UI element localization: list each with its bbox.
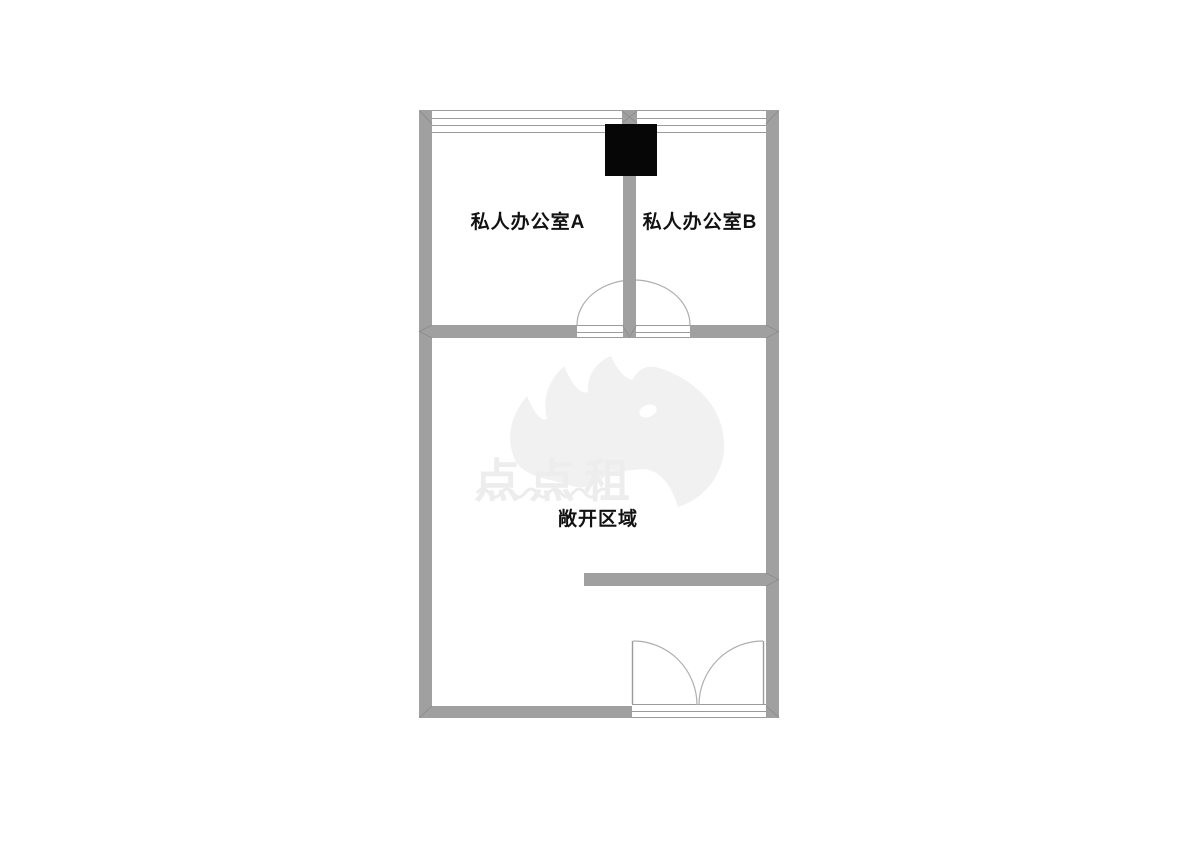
double-door-left-arc bbox=[633, 641, 697, 705]
door-sill-line bbox=[632, 711, 766, 712]
door-sill-office-b bbox=[636, 325, 690, 338]
watermark-text: 点点租 bbox=[474, 445, 639, 511]
wall-stub-interior bbox=[584, 573, 779, 586]
window-symbol bbox=[432, 110, 766, 133]
door-sill-entrance bbox=[632, 704, 766, 718]
door-sill-office-a bbox=[577, 325, 623, 338]
column-block bbox=[605, 124, 657, 176]
wall-right bbox=[766, 110, 779, 718]
wall-left bbox=[419, 110, 432, 718]
wall-mid-left bbox=[419, 325, 577, 338]
room-label-open-area: 敞开区域 bbox=[508, 504, 688, 531]
room-label-office-b: 私人办公室B bbox=[610, 207, 790, 234]
wall-joint-marks bbox=[420, 111, 780, 718]
door-sill-line bbox=[577, 332, 623, 333]
floor-plan-canvas: 点点租 私人办公室A 私人办公室B 敞开区域 bbox=[0, 0, 1200, 860]
wall-mid-right bbox=[690, 325, 779, 338]
room-label-office-a: 私人办公室A bbox=[438, 207, 618, 234]
double-door-right-arc bbox=[699, 641, 763, 705]
door-sill-line bbox=[636, 332, 690, 333]
double-door-symbol bbox=[633, 641, 764, 705]
window-pane-line bbox=[432, 118, 766, 119]
wall-bottom-left bbox=[419, 706, 632, 718]
window-pane-line bbox=[432, 125, 766, 126]
